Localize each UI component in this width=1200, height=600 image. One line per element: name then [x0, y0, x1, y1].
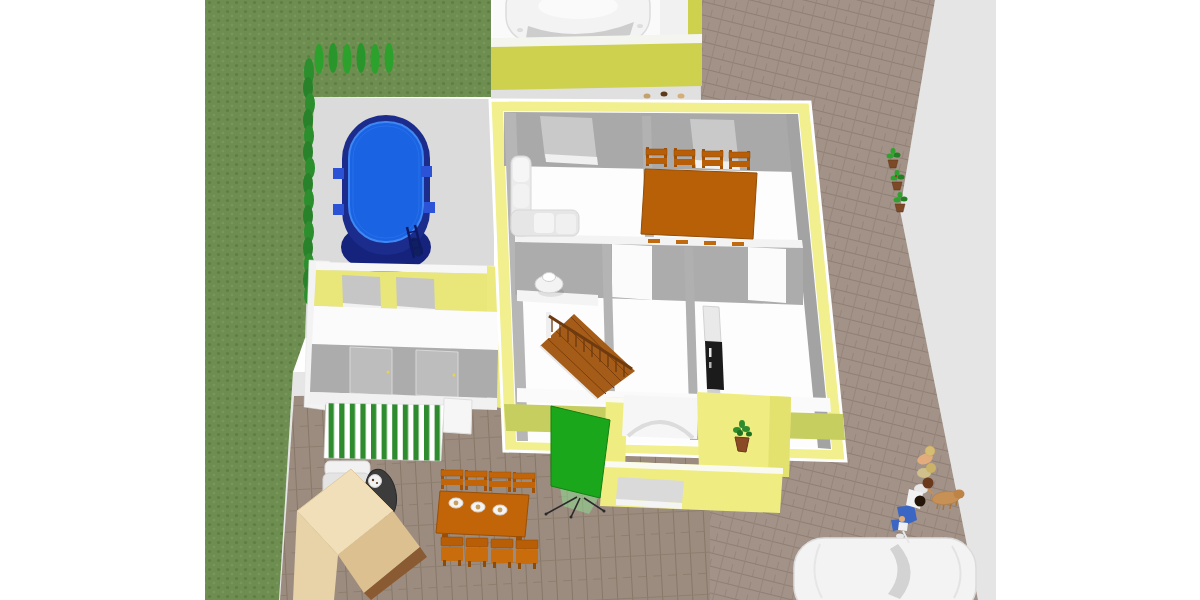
shirt — [898, 522, 908, 531]
cypress-tree — [329, 43, 338, 73]
chair-leg — [648, 239, 660, 243]
pool-skimmer — [333, 168, 344, 179]
food — [376, 482, 378, 484]
shoe — [644, 94, 651, 99]
cypress-tree — [357, 43, 366, 73]
food — [372, 479, 374, 481]
washbasin-tap — [543, 273, 556, 282]
hall-doorway[interactable] — [612, 244, 652, 300]
pool-house-door[interactable] — [416, 350, 458, 398]
dog-head — [954, 490, 965, 499]
fridge-handle — [709, 348, 712, 357]
pool-house-window[interactable] — [342, 275, 381, 308]
fridge-front — [705, 341, 724, 390]
dining-table-top — [641, 169, 757, 239]
plant-leaf — [737, 430, 743, 436]
place-setting — [493, 505, 507, 515]
swimming-pool[interactable] — [333, 115, 435, 273]
sofa-cushion — [534, 213, 554, 233]
chair-leg — [732, 242, 744, 246]
scene-svg — [0, 0, 1200, 600]
door-handle — [453, 374, 456, 377]
cypress-tree — [343, 44, 352, 74]
car-mirror — [517, 28, 523, 32]
porch-wall-shade — [768, 396, 791, 477]
sofa-cushion — [513, 158, 529, 182]
pool-house-window[interactable] — [396, 277, 435, 310]
chair-leg — [704, 241, 716, 245]
garage-front-wall — [491, 43, 702, 90]
pool-house-inner-wall — [310, 344, 498, 398]
patio-table-top — [436, 491, 529, 537]
sofa-cushion — [556, 214, 576, 234]
fridge-handle — [709, 362, 712, 368]
pool-skimmer — [333, 204, 344, 215]
pool-skimmer — [424, 202, 435, 213]
car-mirror — [896, 534, 904, 539]
car-mirror — [637, 24, 643, 28]
cypress-tree — [385, 43, 394, 73]
porch-window[interactable] — [616, 477, 684, 503]
fridge-top — [703, 306, 721, 342]
garage — [491, 0, 702, 99]
shoe — [661, 92, 668, 97]
striped-awning[interactable] — [324, 403, 444, 461]
patio-dining-set[interactable] — [436, 469, 538, 569]
shoe — [678, 94, 685, 99]
pool-house-floor — [312, 306, 499, 350]
cypress-tree — [315, 44, 324, 74]
pool-house-door[interactable] — [350, 347, 392, 396]
head — [915, 496, 926, 507]
place-setting — [471, 502, 485, 512]
pool-water — [349, 122, 423, 242]
tripod-foot — [603, 510, 606, 513]
tripod-foot — [545, 513, 548, 516]
chair-leg — [676, 240, 688, 244]
plant-leaf — [746, 432, 752, 437]
kitchen-doorway[interactable] — [748, 247, 786, 303]
3d-view-canvas[interactable] — [0, 0, 1200, 600]
head — [899, 516, 905, 522]
pool-skimmer — [421, 166, 432, 177]
screen-panel — [551, 406, 610, 498]
plate — [369, 475, 382, 488]
pool-house-south-door[interactable] — [443, 398, 472, 434]
plant-leaf — [739, 420, 745, 428]
place-setting — [449, 498, 463, 508]
car-body — [794, 538, 976, 600]
door-handle — [387, 371, 390, 374]
cypress-tree — [371, 44, 380, 74]
tripod-foot — [570, 516, 573, 519]
sofa-cushion — [513, 184, 529, 208]
flower — [895, 175, 897, 177]
car-driveway[interactable] — [794, 534, 976, 600]
